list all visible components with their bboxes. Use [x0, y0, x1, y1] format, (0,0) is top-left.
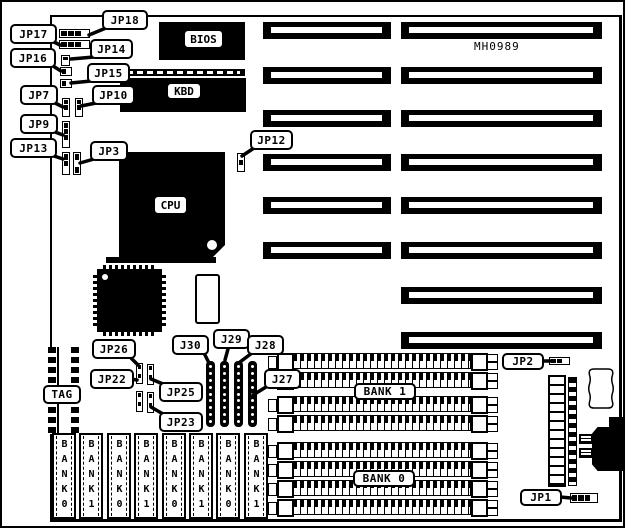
component-outline: [578, 365, 618, 413]
simm-part-pada: [487, 481, 498, 489]
pin-hole: [237, 399, 240, 402]
callout-jp3: JP3: [90, 141, 128, 161]
jumper-pin-open: [149, 399, 152, 403]
callout-j30: J30: [172, 335, 209, 355]
dip-socket-label: BANK1: [191, 435, 211, 517]
simm-part-padb: [487, 489, 498, 497]
simm-part-pada: [487, 373, 498, 381]
jumper-jp26: [136, 363, 143, 384]
pin-hole: [237, 372, 240, 375]
simm-socket-5: [268, 442, 497, 458]
jumper-pin-closed: [64, 161, 68, 167]
dip-socket-label: BANK1: [81, 435, 101, 517]
power-connector-pins: [568, 377, 577, 486]
cpu-pin1-dot: [207, 240, 217, 250]
power-connector: [548, 375, 566, 487]
motherboard-diagram: BIOS KBD CPU MH0989 JP18JP17JP14JP16JP15…: [0, 0, 625, 528]
jumper-pin-closed: [585, 495, 590, 501]
jumper-pin-closed: [75, 31, 81, 36]
isa-slot-key: [409, 72, 593, 78]
dip-socket-4: BANK1: [134, 433, 158, 519]
pin-hole: [223, 393, 226, 396]
jumper-pin-closed: [64, 100, 68, 104]
callout-jp9: JP9: [20, 114, 58, 134]
isa-slot-right-1: [401, 22, 602, 39]
simm-part-padb: [487, 381, 498, 389]
simm-socket-4: [268, 415, 497, 431]
jumper-pin-closed: [77, 105, 81, 109]
pin-hole: [209, 420, 212, 423]
jumper-pin-closed: [64, 129, 68, 134]
jumper-pin-open: [67, 69, 71, 74]
simm-part-tab1: [268, 418, 277, 431]
isa-slot-left-2: [263, 67, 391, 84]
pin-hole: [209, 365, 212, 368]
callout-jp7: JP7: [20, 85, 58, 105]
jumper-pin-open: [63, 61, 68, 64]
qfp-chip: [93, 265, 166, 336]
simm-part-pada: [487, 354, 498, 362]
simm-part-tabr: [471, 396, 488, 414]
pin-hole: [209, 399, 212, 402]
pin-hole: [251, 379, 254, 382]
jumper-pin-open: [82, 42, 88, 47]
callout-jp23: JP23: [159, 412, 203, 432]
jumper-jp15: [60, 79, 72, 88]
jumper-pin-open: [149, 371, 152, 375]
jumper-pin-open: [138, 379, 141, 383]
j-strip-j30: [206, 361, 215, 427]
simm-part-padb: [487, 508, 498, 516]
callout-bank0: BANK 0: [353, 470, 415, 487]
pin-hole: [251, 372, 254, 375]
simm-part-tabr: [471, 499, 488, 517]
callout-j28: J28: [247, 335, 284, 355]
simm-part-padb: [487, 424, 498, 432]
jumper-pin-closed: [64, 135, 68, 140]
pin-hole: [237, 379, 240, 382]
callout-jp15: JP15: [87, 63, 130, 83]
callout-jp13: JP13: [10, 138, 57, 158]
simm-part-pada: [487, 462, 498, 470]
pin-hole: [209, 386, 212, 389]
jumper-pin-open: [138, 370, 141, 374]
jumper-pin-closed: [138, 374, 141, 378]
pin-hole: [251, 413, 254, 416]
jumper-jp2: [549, 357, 570, 365]
callout-j27: J27: [264, 369, 301, 389]
isa-slot-key: [271, 247, 382, 253]
jumper-pin-closed: [138, 402, 141, 406]
jumper-pin-closed: [572, 495, 577, 501]
callout-tag: TAG: [43, 385, 81, 404]
jumper-jp25: [147, 364, 154, 385]
jumper-jp1: [570, 493, 598, 503]
simm-part-combB: [292, 423, 471, 431]
isa-slot-key: [271, 72, 382, 78]
isa-slot-key: [409, 337, 593, 343]
pin-hole: [237, 386, 240, 389]
pin-hole: [223, 406, 226, 409]
isa-slot-left-6: [263, 242, 391, 259]
pin-hole: [209, 393, 212, 396]
kbd-chip-label: KBD: [167, 83, 201, 99]
isa-slot-right-2: [401, 67, 602, 84]
jumper-pin-closed: [551, 359, 556, 363]
pin-hole: [209, 413, 212, 416]
simm-part-padb: [487, 405, 498, 413]
dip-socket-6: BANK1: [189, 433, 213, 519]
simm-part-combB: [292, 488, 471, 496]
bios-chip-label: BIOS: [184, 30, 223, 48]
simm-part-tabr: [471, 415, 488, 433]
simm-part-pada: [487, 397, 498, 405]
callout-jp25: JP25: [159, 382, 203, 402]
cpu-chip-label: CPU: [154, 196, 187, 214]
qfp-pins-bottom: [103, 332, 156, 336]
jumper-pin-open: [77, 111, 81, 115]
j-strip-j28: [234, 361, 243, 427]
pin-hole: [251, 399, 254, 402]
dip-socket-label: BANK1: [136, 435, 156, 517]
jumper-pin-closed: [138, 393, 141, 397]
isa-slot-key: [271, 115, 382, 121]
jumper-pin-open: [82, 31, 88, 36]
callout-jp18: JP18: [102, 10, 148, 30]
jumper-jp13: [62, 152, 70, 175]
pin-hole: [223, 413, 226, 416]
jumper-pin-closed: [62, 81, 66, 86]
isa-slot-key: [409, 247, 593, 253]
j-strip-j27: [248, 361, 257, 427]
simm-part-padb: [487, 362, 498, 370]
simm-part-tabr: [471, 480, 488, 498]
isa-slot-right-4: [401, 154, 602, 171]
pin-hole: [223, 365, 226, 368]
simm-part-tabr: [471, 372, 488, 390]
simm-part-padb: [487, 470, 498, 478]
callout-bank1: BANK 1: [354, 383, 416, 400]
jumper-pin-open: [149, 408, 152, 412]
isa-slot-key: [271, 202, 382, 208]
jumper-pin-closed: [557, 359, 562, 363]
j-strip-j29: [220, 361, 229, 427]
jumper-pin-open: [563, 359, 568, 363]
jumper-pin-closed: [64, 154, 68, 160]
simm-socket-1: [268, 353, 497, 369]
jumper-pin-closed: [75, 42, 81, 47]
pin-row: [106, 257, 216, 263]
jumper-pin-open: [67, 81, 71, 86]
callout-jp1: JP1: [520, 489, 562, 506]
jumper-pin-closed: [239, 160, 243, 164]
jumper-jp17: [59, 40, 90, 49]
jumper-pin-closed: [578, 495, 583, 501]
pin-hole: [209, 406, 212, 409]
jumper-pin-closed: [138, 365, 141, 369]
simm-part-combB: [292, 450, 471, 458]
isa-slot-right-3: [401, 110, 602, 127]
simm-part-padb: [487, 451, 498, 459]
jumper-jp12: [237, 153, 245, 172]
pin-hole: [251, 420, 254, 423]
simm-part-combB: [292, 404, 471, 412]
pin-hole: [223, 379, 226, 382]
jumper-jp22: [136, 391, 143, 412]
simm-part-pada: [487, 500, 498, 508]
pin-hole: [251, 386, 254, 389]
callout-jp17: JP17: [10, 24, 57, 44]
pin-hole: [237, 406, 240, 409]
jumper-pin-open: [239, 155, 243, 159]
jumper-pin-open: [591, 495, 596, 501]
isa-slot-key: [409, 292, 593, 298]
jumper-pin-open: [138, 398, 141, 402]
callout-j29: J29: [213, 329, 250, 349]
jumper-pin-closed: [64, 123, 68, 128]
jumper-pin-closed: [61, 42, 67, 47]
jumper-jp16: [60, 67, 72, 76]
simm-part-tab1: [268, 399, 277, 412]
callout-jp2: JP2: [502, 353, 544, 370]
simm-part-tabr: [471, 442, 488, 460]
simm-part-tabr: [471, 353, 488, 371]
dip-socket-8: BANK1: [244, 433, 268, 519]
jumper-jp23: [147, 392, 154, 413]
dip-socket-label: BANK0: [109, 435, 129, 517]
jumper-pin-closed: [75, 167, 79, 173]
pin-hole: [223, 399, 226, 402]
jumper-pin-open: [64, 141, 68, 146]
isa-slot-right-6: [401, 242, 602, 259]
jumper-pin-closed: [64, 105, 68, 109]
keyboard-connector: [592, 427, 625, 471]
isa-slot-key: [271, 159, 382, 165]
dip-socket-label: BANK0: [164, 435, 184, 517]
dip-socket-3: BANK0: [107, 433, 131, 519]
simm-part-tab1: [268, 445, 277, 458]
simm-part-tab1: [268, 502, 277, 515]
simm-part-combB: [292, 361, 471, 369]
simm-socket-8: [268, 499, 497, 515]
dip-socket-7: BANK0: [216, 433, 240, 519]
isa-slot-key: [271, 27, 382, 33]
jumper-pin-closed: [75, 154, 79, 160]
jumper-pin-closed: [77, 100, 81, 104]
jumper-jp14: [61, 55, 70, 66]
jumper-pin-closed: [63, 57, 68, 60]
pin-hole: [209, 372, 212, 375]
isa-slot-right-5: [401, 197, 602, 214]
pin-hole: [237, 365, 240, 368]
pin-hole: [209, 379, 212, 382]
jumper-pin-closed: [68, 31, 74, 36]
dip-socket-label: BANK0: [218, 435, 238, 517]
simm-part-tab1: [268, 464, 277, 477]
dip-socket-1: BANK0: [52, 433, 76, 519]
crystal-oscillator: [195, 274, 220, 324]
jumper-jp18: [59, 29, 90, 38]
callout-jp14: JP14: [90, 39, 133, 59]
keyboard-connector-pin-a: [579, 434, 593, 444]
simm-part-pada: [487, 416, 498, 424]
pin-hole: [237, 393, 240, 396]
callout-jp26: JP26: [92, 339, 136, 359]
dip-socket-5: BANK0: [162, 433, 186, 519]
jumper-pin-open: [239, 166, 243, 170]
jumper-pin-open: [64, 167, 68, 173]
jumper-jp7: [62, 98, 70, 117]
jumper-pin-closed: [68, 42, 74, 47]
pin-hole: [251, 393, 254, 396]
isa-slot-key: [409, 202, 593, 208]
isa-slot-key: [409, 115, 593, 121]
isa-slot-left-3: [263, 110, 391, 127]
pin-hole: [251, 365, 254, 368]
isa-slot-right-7: [401, 287, 602, 304]
simm-part-tabr: [471, 461, 488, 479]
dip-socket-label: BANK1: [246, 435, 266, 517]
board-model-text: MH0989: [474, 40, 520, 53]
jumper-pin-closed: [61, 31, 67, 36]
jumper-pin-closed: [149, 366, 152, 370]
callout-jp12: JP12: [250, 130, 293, 150]
jumper-pin-open: [149, 380, 152, 384]
simm-part-tab1: [268, 483, 277, 496]
jumper-pin-open: [138, 407, 141, 411]
kbd-dashed-line: [127, 71, 240, 74]
callout-jp10: JP10: [92, 85, 135, 105]
pin-hole: [237, 420, 240, 423]
callout-jp16: JP16: [10, 48, 56, 68]
jumper-jp10: [75, 98, 83, 117]
jumper-pin-closed: [62, 69, 66, 74]
jumper-pin-closed: [149, 394, 152, 398]
isa-slot-key: [409, 27, 593, 33]
isa-slot-right-8: [401, 332, 602, 349]
jumper-jp3: [73, 152, 81, 175]
callout-jp22: JP22: [90, 369, 134, 389]
simm-part-pada: [487, 443, 498, 451]
dip-socket-2: BANK1: [79, 433, 103, 519]
pin-hole: [223, 420, 226, 423]
pin-hole: [223, 386, 226, 389]
isa-slot-key: [409, 159, 593, 165]
qfp-pins-right: [162, 275, 166, 326]
jumper-jp9: [62, 121, 70, 148]
keyboard-connector-pin-b: [579, 448, 593, 458]
isa-slot-left-4: [263, 154, 391, 171]
pin-hole: [223, 372, 226, 375]
qfp-pin1-dot: [102, 274, 108, 280]
isa-slot-left-5: [263, 197, 391, 214]
jumper-pin-closed: [149, 375, 152, 379]
jumper-pin-open: [75, 161, 79, 167]
jumper-pin-open: [64, 111, 68, 115]
kbd-socket-edge: [120, 69, 245, 76]
jumper-pin-closed: [149, 403, 152, 407]
pin-hole: [237, 413, 240, 416]
simm-part-combB: [292, 507, 471, 515]
simm-part-tab1: [268, 356, 277, 369]
pin-hole: [251, 406, 254, 409]
dip-socket-label: BANK0: [54, 435, 74, 517]
isa-slot-left-1: [263, 22, 391, 39]
